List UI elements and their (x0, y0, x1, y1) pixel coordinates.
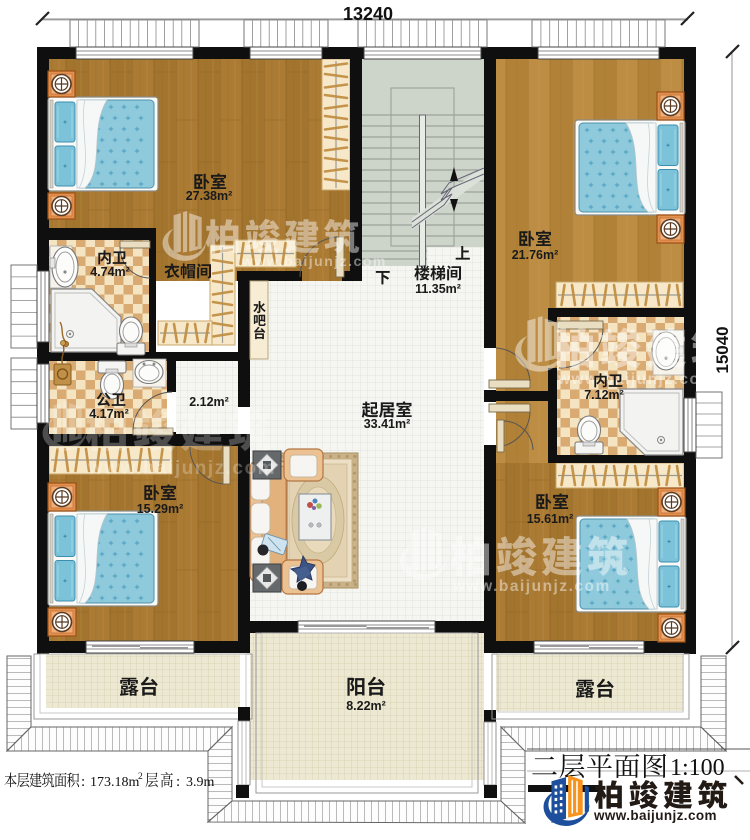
svg-text:3.9m: 3.9m (186, 775, 215, 790)
svg-text:8.22m²: 8.22m² (346, 699, 386, 713)
svg-text:4.74m²: 4.74m² (90, 265, 130, 279)
svg-text:11.35m²: 11.35m² (415, 282, 461, 296)
svg-text:www.baijunjz.com: www.baijunjz.com (452, 578, 611, 595)
svg-text:4.17m²: 4.17m² (89, 407, 129, 421)
svg-text:13240: 13240 (343, 4, 393, 24)
svg-text:15.29m²: 15.29m² (137, 502, 184, 516)
svg-text::: : (176, 774, 180, 790)
svg-text:15040: 15040 (713, 326, 732, 373)
svg-text:173.18m: 173.18m (90, 775, 140, 790)
svg-text:www.baijunjz.com: www.baijunjz.com (87, 458, 276, 479)
svg-text:2: 2 (138, 772, 143, 782)
svg-text:7.12m²: 7.12m² (584, 388, 624, 402)
svg-text:www.baijunjz.com: www.baijunjz.com (593, 808, 717, 823)
svg-text:15.61m²: 15.61m² (527, 512, 574, 526)
svg-text:1:100: 1:100 (670, 755, 725, 781)
svg-text:2.12m²: 2.12m² (189, 395, 229, 409)
svg-text:www.baijunjz.com: www.baijunjz.com (557, 371, 716, 388)
svg-text::: : (81, 774, 85, 790)
svg-text:33.41m²: 33.41m² (364, 417, 411, 431)
svg-text:www.baijunjz.com: www.baijunjz.com (241, 253, 387, 269)
svg-text:21.76m²: 21.76m² (512, 248, 559, 262)
svg-text:27.38m²: 27.38m² (186, 189, 233, 203)
